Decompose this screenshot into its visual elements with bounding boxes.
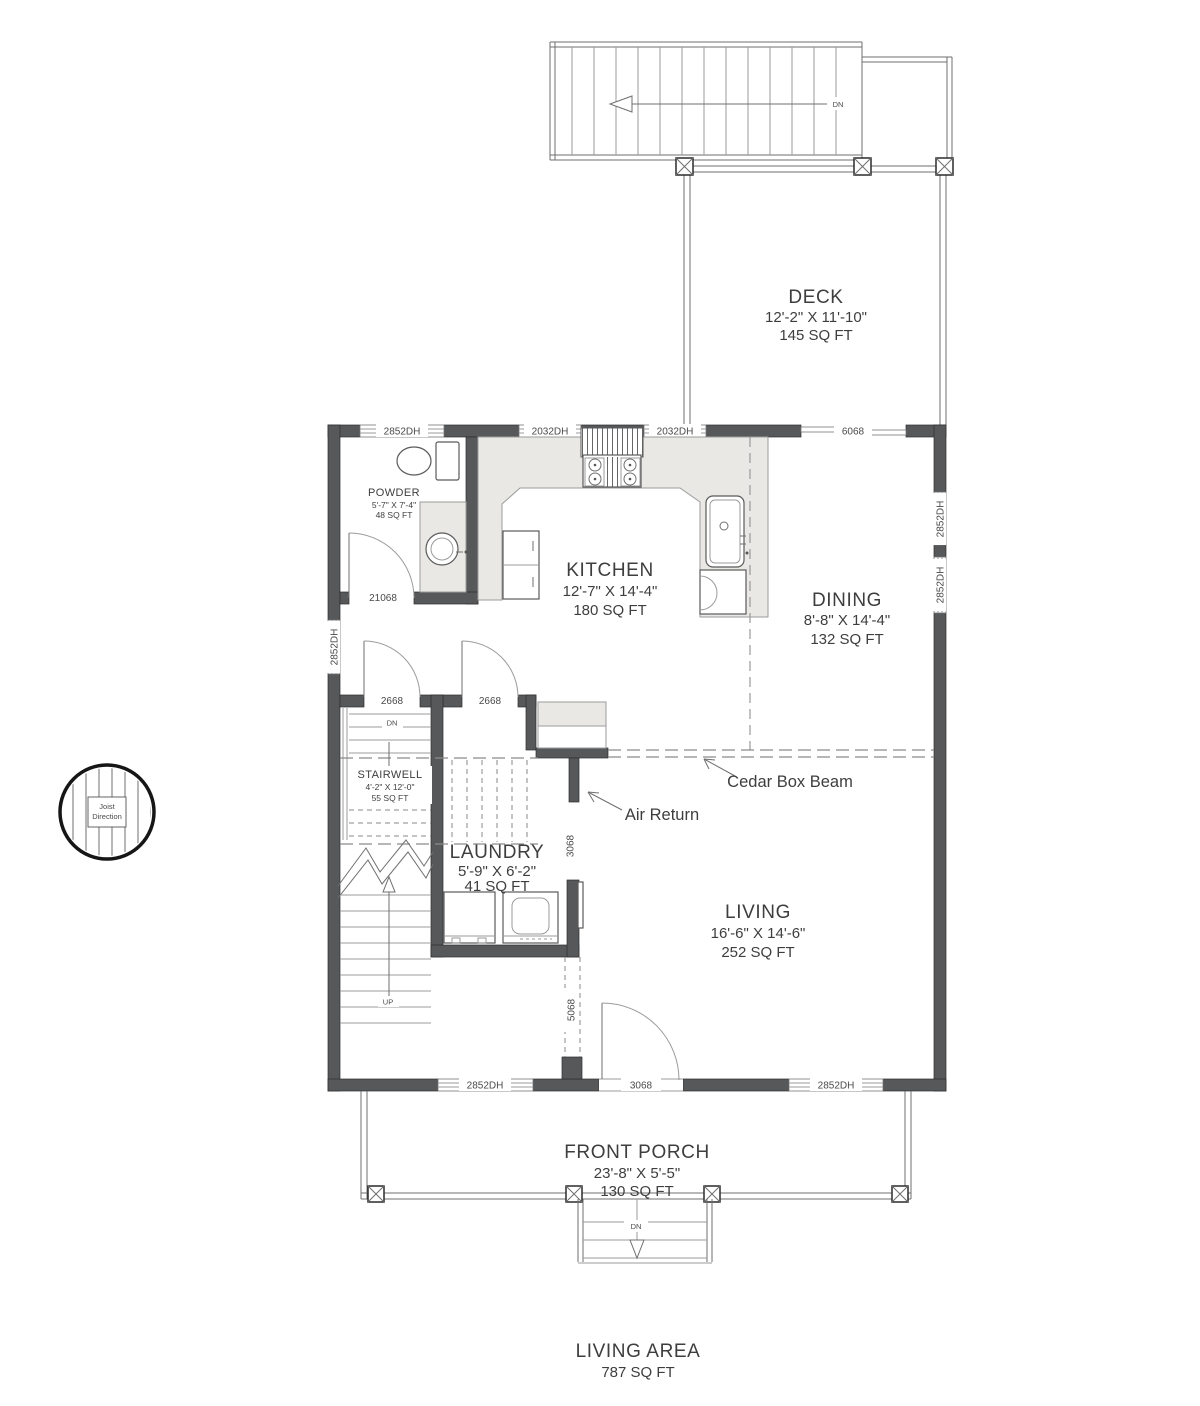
room-area: 252 SQ FT xyxy=(721,944,794,961)
opening-label: 5068 xyxy=(567,998,578,1021)
room-dims: 12'-2" X 11'-10" xyxy=(765,309,867,326)
front-door-3068: 3068 xyxy=(599,1003,683,1092)
room-name: LAUNDRY xyxy=(450,842,545,863)
stair-down-label: DN xyxy=(387,719,398,728)
window-2032dh-right: 2032DH xyxy=(644,424,706,438)
powder-door-21068: 21068 xyxy=(349,533,414,604)
porch-post xyxy=(566,1186,582,1202)
porch-down-label: DN xyxy=(631,1222,642,1231)
room-name: STAIRWELL xyxy=(358,769,423,781)
cased-opening-5068: 5068 xyxy=(564,957,580,1057)
window-label: 2032DH xyxy=(532,427,569,438)
front-porch: DN FRONT PORCH 23'-8" X 5'-5" 130 SQ FT xyxy=(361,1091,911,1263)
porch-label: FRONT PORCH 23'-8" X 5'-5" 130 SQ FT xyxy=(564,1142,710,1200)
porch-post xyxy=(892,1186,908,1202)
room-dims: 5'-7" X 7'-4" xyxy=(372,500,416,510)
window-label: 2852DH xyxy=(936,567,947,604)
window-2852dh-right-lower: 2852DH xyxy=(933,557,947,613)
floor-plan-svg: DN DECK 12'-2" X 11'-10" 145 SQ FT xyxy=(0,0,1200,1406)
hidden-stair-flight xyxy=(452,760,527,842)
window-2852dh-left: 2852DH xyxy=(327,620,341,674)
door-label: 2668 xyxy=(479,696,502,707)
room-name: KITCHEN xyxy=(566,560,654,581)
room-area: 41 SQ FT xyxy=(464,878,529,895)
floor-plan-canvas: DN DECK 12'-2" X 11'-10" 145 SQ FT xyxy=(0,0,1200,1406)
hall-door-2668-left: 2668 xyxy=(364,641,420,707)
window-2852dh-bottom-left: 2852DH xyxy=(438,1078,533,1092)
summary-area: 787 SQ FT xyxy=(601,1364,674,1381)
dryer xyxy=(503,892,558,943)
joist-direction-label: Direction xyxy=(92,812,122,821)
deck: DN DECK 12'-2" X 11'-10" 145 SQ FT xyxy=(550,42,953,425)
living-area-summary: LIVING AREA 787 SQ FT xyxy=(576,1341,701,1381)
deck-stair-direction-arrow xyxy=(610,96,632,112)
window-2852dh-top: 2852DH xyxy=(360,424,444,438)
pantry-counter xyxy=(538,702,606,748)
summary-label: LIVING AREA xyxy=(576,1341,701,1362)
deck-post xyxy=(854,158,871,175)
room-area: 48 SQ FT xyxy=(376,510,413,520)
deck-post xyxy=(676,158,693,175)
room-dims: 8'-8" X 14'-4" xyxy=(804,612,890,629)
deck-stairs: DN xyxy=(550,42,862,165)
joist-direction-symbol: Joist Direction xyxy=(60,762,154,862)
laundry-label: LAUNDRY 5'-9" X 6'-2" 41 SQ FT xyxy=(450,842,545,895)
dining-label: DINING 8'-8" X 14'-4" 132 SQ FT xyxy=(804,590,890,648)
room-name: FRONT PORCH xyxy=(564,1142,710,1163)
stair-up-label: UP xyxy=(383,998,393,1007)
refrigerator xyxy=(503,531,539,599)
hall-door-2668-right: 2668 xyxy=(462,641,518,707)
wall-stub xyxy=(562,1057,582,1079)
room-dims: 12'-7" X 14'-4" xyxy=(563,583,658,600)
door-label: 2668 xyxy=(381,696,404,707)
window-label: 2852DH xyxy=(384,427,421,438)
porch-steps-down-arrow xyxy=(630,1240,644,1258)
slider-door-6068: 6068 xyxy=(801,424,906,438)
vanity-sink xyxy=(420,502,468,592)
room-area: 180 SQ FT xyxy=(573,602,646,619)
living-label: LIVING 16'-6" X 14'-6" 252 SQ FT xyxy=(711,902,806,961)
kitchen-sink xyxy=(706,496,749,567)
air-return-chase xyxy=(569,758,579,802)
door-label: 6068 xyxy=(842,427,865,438)
deck-post xyxy=(936,158,953,175)
window-label: 2852DH xyxy=(936,501,947,538)
toilet xyxy=(397,442,459,480)
laundry: 3068 LAUNDRY 5'-9" X 6'-2" 41 SQ FT xyxy=(431,824,583,957)
room-area: 145 SQ FT xyxy=(779,327,852,344)
window-label: 2032DH xyxy=(657,427,694,438)
room-name: DINING xyxy=(812,590,882,611)
porch-steps: DN xyxy=(578,1199,712,1263)
porch-post xyxy=(368,1186,384,1202)
room-name: POWDER xyxy=(368,487,420,499)
joist-direction-label: Joist xyxy=(99,802,115,811)
powder-room: 21068 POWDER 5'-7" X 7'-4" 48 SQ FT xyxy=(340,437,478,604)
window-label: 2852DH xyxy=(818,1081,855,1092)
window-label: 2852DH xyxy=(467,1081,504,1092)
room-area: 130 SQ FT xyxy=(600,1183,673,1200)
washer xyxy=(444,892,495,943)
room-name: LIVING xyxy=(725,902,791,923)
room-dims: 16'-6" X 14'-6" xyxy=(711,925,806,942)
air-return-label: Air Return xyxy=(625,806,699,824)
window-2852dh-right-upper: 2852DH xyxy=(933,492,947,545)
door-label: 3068 xyxy=(566,834,577,857)
window-label: 2852DH xyxy=(330,629,341,666)
door-label: 21068 xyxy=(369,593,397,604)
cedar-box-beam: Cedar Box Beam xyxy=(608,750,934,791)
window-2852dh-bottom-right: 2852DH xyxy=(789,1078,883,1092)
deck-label: DECK 12'-2" X 11'-10" 145 SQ FT xyxy=(765,287,867,344)
window-2032dh-left: 2032DH xyxy=(519,424,581,438)
cedar-box-beam-label: Cedar Box Beam xyxy=(727,773,853,791)
room-area: 55 SQ FT xyxy=(372,793,409,803)
powder-label: POWDER 5'-7" X 7'-4" 48 SQ FT xyxy=(368,487,420,520)
room-dims: 4'-2" X 12'-0" xyxy=(366,782,415,792)
air-return: Air Return xyxy=(588,792,699,824)
door-label: 3068 xyxy=(630,1081,653,1092)
range xyxy=(581,428,643,487)
room-dims: 23'-8" X 5'-5" xyxy=(594,1165,680,1182)
deck-stair-down-label: DN xyxy=(833,100,844,109)
room-name: DECK xyxy=(788,287,843,308)
room-area: 132 SQ FT xyxy=(810,631,883,648)
stair-up-arrow xyxy=(383,877,395,892)
dishwasher xyxy=(700,570,746,614)
kitchen-label: KITCHEN 12'-7" X 14'-4" 180 SQ FT xyxy=(563,560,658,619)
